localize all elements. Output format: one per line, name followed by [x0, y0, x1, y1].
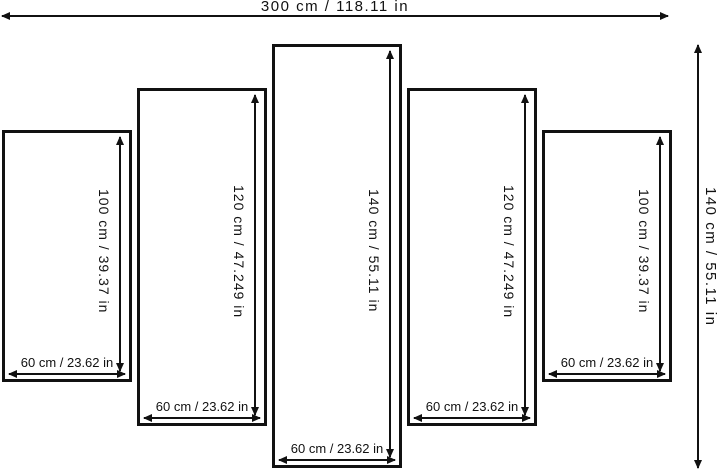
overall-width-dimension-arrow — [2, 15, 668, 17]
panel-3-width-label: 60 cm / 23.62 in — [277, 442, 397, 456]
panel-size-diagram: 300 cm / 118.11 in 140 cm / 55.11 in 100… — [0, 0, 720, 474]
panel-4-height-dimension-arrow — [524, 95, 526, 415]
arrowhead-up — [656, 136, 664, 145]
arrowhead-up — [116, 136, 124, 145]
panel-1-width-label: 60 cm / 23.62 in — [7, 356, 127, 370]
arrowhead-right — [387, 456, 396, 464]
panel-1-width-dimension-arrow — [9, 373, 125, 375]
arrowhead-right — [660, 12, 669, 20]
panel-2-width-label: 60 cm / 23.62 in — [142, 400, 262, 414]
panel-4: 120 cm / 47.249 in 60 cm / 23.62 in — [407, 88, 537, 426]
panel-3-width-dimension-arrow — [279, 459, 395, 461]
panel-2-height-dimension-arrow — [254, 95, 256, 415]
panel-5-width-label: 60 cm / 23.62 in — [547, 356, 667, 370]
overall-width-label: 300 cm / 118.11 in — [2, 0, 668, 14]
arrowhead-up — [521, 94, 529, 103]
arrowhead-right — [522, 414, 531, 422]
panel-3: 140 cm / 55.11 in 60 cm / 23.62 in — [272, 44, 402, 468]
panel-2-width-dimension-arrow — [144, 417, 260, 419]
arrowhead-up — [386, 50, 394, 59]
panel-2: 120 cm / 47.249 in 60 cm / 23.62 in — [137, 88, 267, 426]
panel-5: 100 cm / 39.37 in 60 cm / 23.62 in — [542, 130, 672, 382]
panel-5-height-dimension-arrow — [659, 137, 661, 371]
panel-1-height-label: 100 cm / 39.37 in — [95, 137, 113, 365]
panel-4-height-label: 120 cm / 47.249 in — [500, 95, 518, 409]
arrowhead-up — [251, 94, 259, 103]
arrowhead-right — [657, 370, 666, 378]
panel-1-height-dimension-arrow — [119, 137, 121, 371]
panel-5-width-dimension-arrow — [549, 373, 665, 375]
arrowhead-left — [143, 414, 152, 422]
arrowhead-left — [8, 370, 17, 378]
panel-5-height-label: 100 cm / 39.37 in — [635, 137, 653, 365]
arrowhead-left — [548, 370, 557, 378]
panel-3-height-label: 140 cm / 55.11 in — [365, 51, 383, 451]
panel-2-height-label: 120 cm / 47.249 in — [230, 95, 248, 409]
panel-4-width-dimension-arrow — [414, 417, 530, 419]
arrowhead-left — [413, 414, 422, 422]
arrowhead-left — [278, 456, 287, 464]
panel-3-height-dimension-arrow — [389, 51, 391, 457]
arrowhead-right — [252, 414, 261, 422]
arrowhead-right — [117, 370, 126, 378]
arrowhead-left — [1, 12, 10, 20]
overall-height-label: 140 cm / 55.11 in — [700, 45, 720, 468]
panel-4-width-label: 60 cm / 23.62 in — [412, 400, 532, 414]
panel-1: 100 cm / 39.37 in 60 cm / 23.62 in — [2, 130, 132, 382]
overall-height-dimension-arrow — [697, 45, 699, 468]
